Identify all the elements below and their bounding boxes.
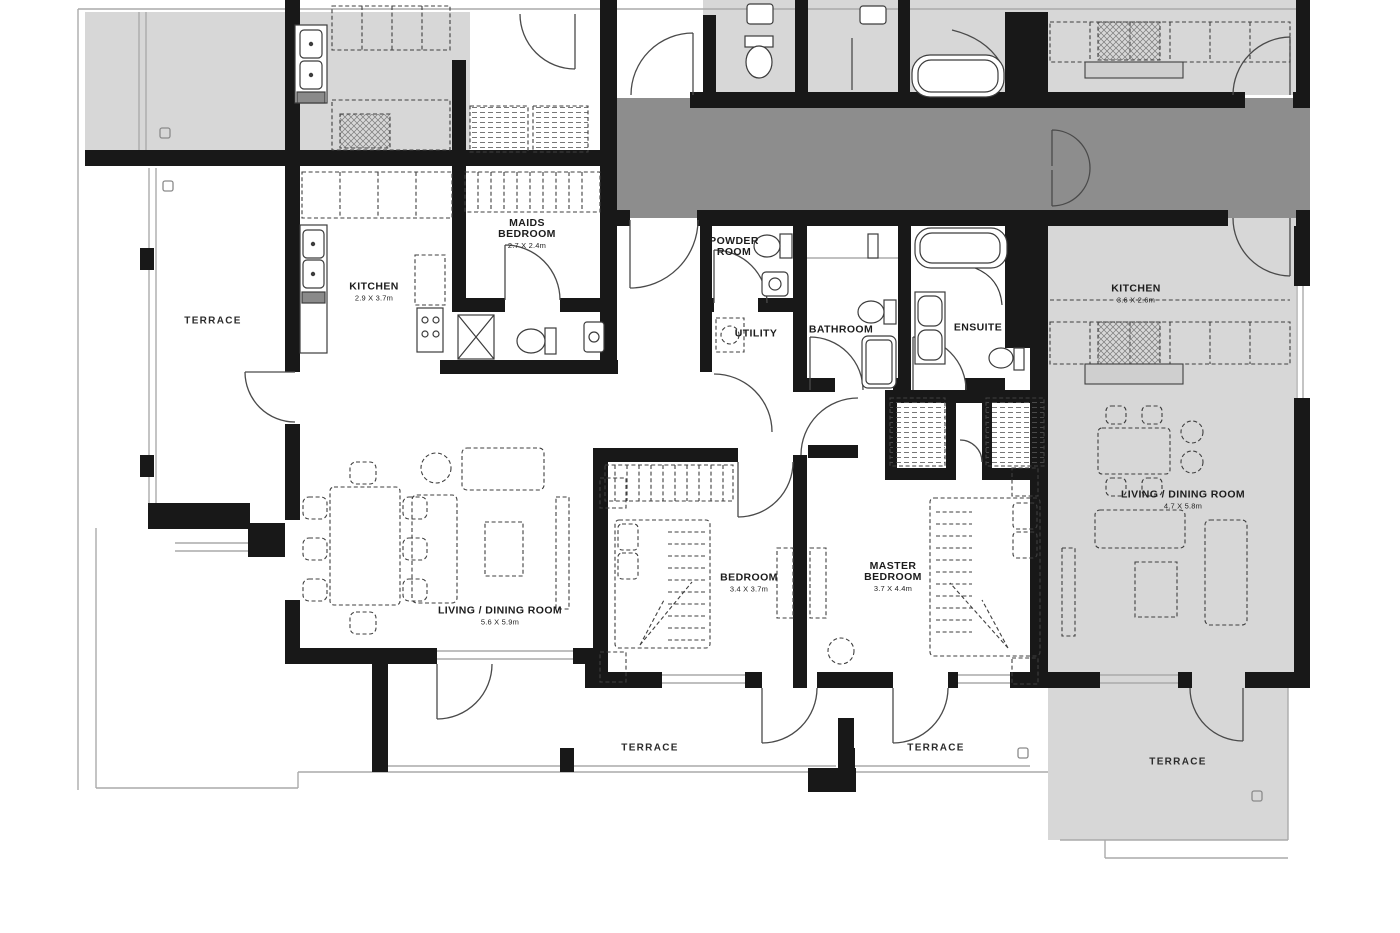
room-name: LIVING / DINING ROOM	[438, 605, 562, 616]
room-name: KITCHEN	[349, 281, 398, 292]
room-name: TERRACE	[1149, 758, 1206, 769]
room-label-living-dining-center: LIVING / DINING ROOM 5.6 X 5.9m	[438, 605, 562, 626]
room-dims: 3.7 X 4.4m	[851, 584, 935, 593]
room-name: MASTER BEDROOM	[851, 561, 935, 583]
room-label-bathroom: BATHROOM	[809, 324, 873, 335]
room-dims: 5.6 X 5.9m	[438, 618, 562, 627]
room-dims: 2.7 X 2.4m	[491, 241, 563, 250]
room-name: KITCHEN	[1111, 283, 1160, 294]
room-name: ENSUITE	[954, 322, 1002, 333]
floor-plan: TERRACE KITCHEN 2.9 X 3.7m MAIDS BEDROOM…	[0, 0, 1400, 933]
dining-set-center	[303, 462, 427, 634]
room-name: LIVING / DINING ROOM	[1121, 489, 1245, 500]
room-dims: 3.6 X 2.6m	[1111, 296, 1160, 305]
sofa-set-center	[412, 448, 569, 609]
bathroom-fixtures	[807, 234, 898, 388]
room-label-powder-room: POWDER ROOM	[704, 236, 764, 258]
room-name: TERRACE	[184, 317, 241, 328]
room-label-utility: UTILITY	[735, 328, 777, 339]
bedroom-furniture	[600, 465, 826, 682]
floor-plan-drawing	[0, 0, 1400, 933]
room-label-living-dining-right: LIVING / DINING ROOM 4.7 X 5.8m	[1121, 489, 1245, 510]
room-name: UTILITY	[735, 328, 777, 339]
sink-unit-top	[295, 25, 327, 103]
master-bedroom-furniture	[828, 398, 1044, 684]
room-name: POWDER ROOM	[704, 236, 764, 258]
room-name: BEDROOM	[720, 572, 778, 583]
room-name: MAIDS BEDROOM	[491, 218, 563, 240]
room-label-terrace-bottom-left: TERRACE	[621, 744, 678, 755]
maids-bathroom-fixtures	[458, 315, 604, 359]
room-label-master-bedroom: MASTER BEDROOM 3.7 X 4.4m	[851, 561, 935, 593]
room-name: BATHROOM	[809, 324, 873, 335]
room-dims: 2.9 X 3.7m	[349, 294, 398, 303]
room-label-ensuite: ENSUITE	[954, 322, 1002, 333]
room-label-terrace-bottom-right: TERRACE	[907, 744, 964, 755]
room-dims: 3.4 X 3.7m	[720, 585, 778, 594]
room-label-terrace-left: TERRACE	[184, 317, 241, 328]
room-dims: 4.7 X 5.8m	[1121, 502, 1245, 511]
room-label-kitchen-right: KITCHEN 3.6 X 2.6m	[1111, 283, 1160, 304]
room-label-bedroom: BEDROOM 3.4 X 3.7m	[720, 572, 778, 593]
room-label-terrace-right-unit: TERRACE	[1149, 758, 1206, 769]
room-label-maids-bedroom: MAIDS BEDROOM 2.7 X 2.4m	[491, 218, 563, 250]
corridor	[616, 98, 1310, 218]
room-name: TERRACE	[907, 744, 964, 755]
room-label-kitchen-left: KITCHEN 2.9 X 3.7m	[349, 281, 398, 302]
room-name: TERRACE	[621, 744, 678, 755]
